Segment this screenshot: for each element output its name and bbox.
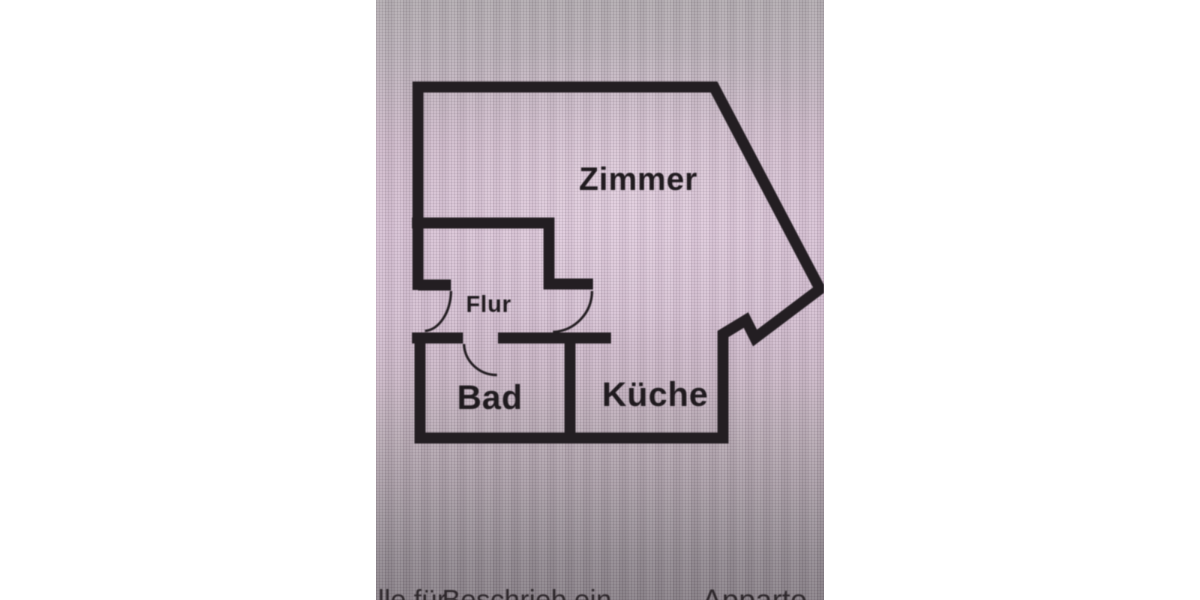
floorplan-photo: Zimmer Flur Bad Küche lle für Beschrieb … bbox=[376, 0, 824, 600]
room-label-flur: Flur bbox=[466, 293, 511, 316]
zimmer-flur-wall bbox=[412, 223, 593, 284]
bad-door-arc bbox=[464, 344, 497, 375]
floorplan-drawing: Zimmer Flur Bad Küche bbox=[376, 0, 824, 600]
caption-fragment-left: lle für bbox=[378, 586, 446, 600]
room-label-zimmer: Zimmer bbox=[579, 163, 698, 195]
room-label-bad: Bad bbox=[457, 381, 523, 415]
zimmer-door-arc bbox=[553, 291, 592, 332]
floorplan-walls bbox=[376, 0, 824, 600]
entrance-door-arc bbox=[425, 291, 451, 331]
caption-fragment-right: Apparte bbox=[702, 586, 807, 600]
caption-fragment-mid: Beschrieb ein bbox=[442, 586, 612, 600]
screenshot-root: Zimmer Flur Bad Küche lle für Beschrieb … bbox=[0, 0, 1200, 600]
room-label-kueche: Küche bbox=[602, 378, 708, 412]
